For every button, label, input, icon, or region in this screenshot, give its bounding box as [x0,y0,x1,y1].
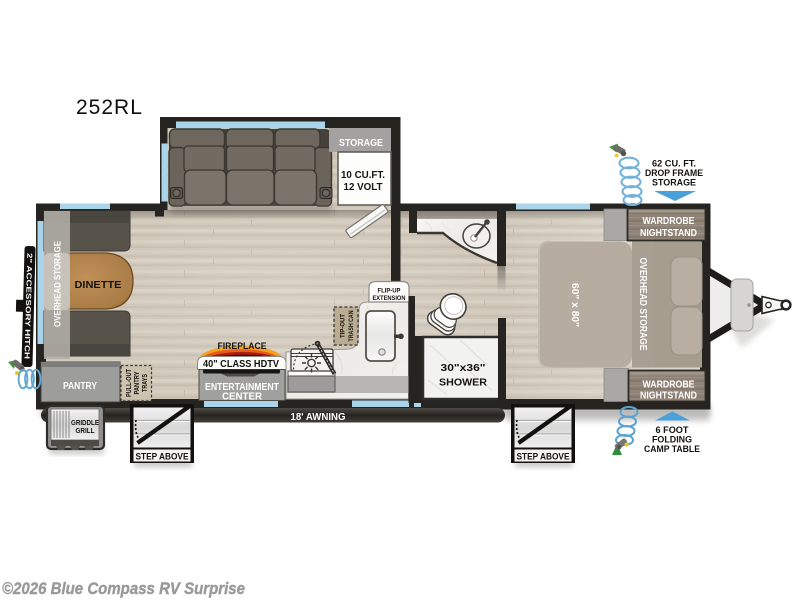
svg-text:CENTER: CENTER [222,392,263,403]
svg-text:40" CLASS HDTV: 40" CLASS HDTV [203,358,279,370]
svg-text:60" x 80": 60" x 80" [569,283,581,327]
svg-text:EXTENSION: EXTENSION [373,295,406,302]
svg-text:STORAGE: STORAGE [652,178,697,189]
svg-text:12 VOLT: 12 VOLT [344,182,383,193]
svg-text:NIGHTSTAND: NIGHTSTAND [640,227,697,239]
svg-text:TRASH CAN: TRASH CAN [348,310,355,341]
svg-text:30"x36": 30"x36" [441,362,486,374]
svg-text:PANTRY: PANTRY [134,371,141,394]
svg-text:PANTRY: PANTRY [63,381,97,392]
svg-text:GRILL: GRILL [76,428,96,435]
svg-text:STEP ABOVE: STEP ABOVE [136,452,189,463]
svg-text:OVERHEAD STORAGE: OVERHEAD STORAGE [637,258,648,351]
svg-text:STORAGE: STORAGE [339,138,383,149]
svg-text:PULL-OUT: PULL-OUT [126,368,133,397]
svg-text:10 CU.FT.: 10 CU.FT. [341,170,385,181]
svg-text:DINETTE: DINETTE [75,280,122,291]
svg-text:NIGHTSTAND: NIGHTSTAND [640,390,697,402]
svg-text:©2026 Blue Compass RV Surprise: ©2026 Blue Compass RV Surprise [2,580,245,598]
svg-text:CAMP TABLE: CAMP TABLE [644,444,701,455]
svg-text:OVERHEAD STORAGE: OVERHEAD STORAGE [53,241,63,327]
svg-text:TRAYS: TRAYS [142,374,149,392]
svg-text:FLIP-UP: FLIP-UP [378,288,402,295]
svg-text:GRIDDLE: GRIDDLE [71,420,99,427]
svg-text:TIP-OUT: TIP-OUT [340,314,347,338]
svg-text:18' AWNING: 18' AWNING [291,412,346,423]
svg-text:FIREPLACE: FIREPLACE [218,341,267,352]
svg-text:SHOWER: SHOWER [439,377,487,389]
svg-text:WARDROBE: WARDROBE [643,215,695,227]
svg-text:STEP ABOVE: STEP ABOVE [517,452,570,463]
svg-text:252RL: 252RL [76,96,143,119]
